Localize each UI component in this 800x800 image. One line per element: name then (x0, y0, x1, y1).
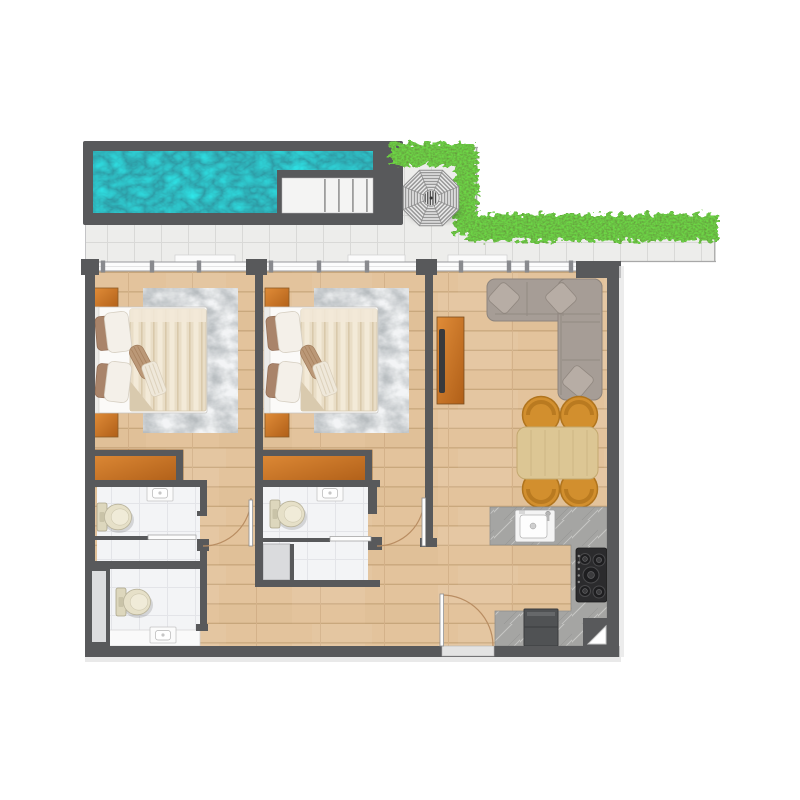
wall-right (607, 263, 619, 657)
entry-door-leaf (440, 594, 444, 646)
bedroom-1-door-leaf (249, 500, 253, 546)
kitchen-sink (515, 510, 555, 542)
pool-block (83, 141, 403, 225)
window-wall (85, 261, 620, 273)
tv-screen (439, 329, 445, 393)
bedroom-2-furniture (264, 288, 409, 437)
bathroom-2-door-leaf (330, 537, 371, 542)
tv-console (437, 317, 464, 404)
cooktop (576, 548, 607, 602)
wall-living-divider (425, 271, 433, 541)
hedge-right-strip (467, 214, 718, 241)
tall-appliance (524, 609, 558, 646)
parasol-umbrella (403, 170, 460, 225)
bedroom-1-furniture (93, 288, 238, 437)
dining-set (517, 397, 598, 508)
entry-threshold (442, 646, 494, 656)
washbasin-bathroom-1 (147, 485, 173, 501)
washbasin-bathroom-3 (150, 627, 176, 643)
floor-plan-canvas (0, 0, 800, 800)
floor-plan-drawing (0, 0, 800, 800)
bedroom-2-door-leaf (422, 498, 426, 546)
dining-table (517, 427, 598, 479)
shower-stall (263, 544, 290, 580)
washbasin-bathroom-2 (317, 485, 343, 501)
wall-bottom (85, 646, 620, 657)
service-shaft (92, 571, 106, 642)
pool-stairs (282, 178, 373, 213)
bathroom-1-door-leaf (148, 535, 196, 540)
wall-bedroom-divider (255, 271, 263, 587)
